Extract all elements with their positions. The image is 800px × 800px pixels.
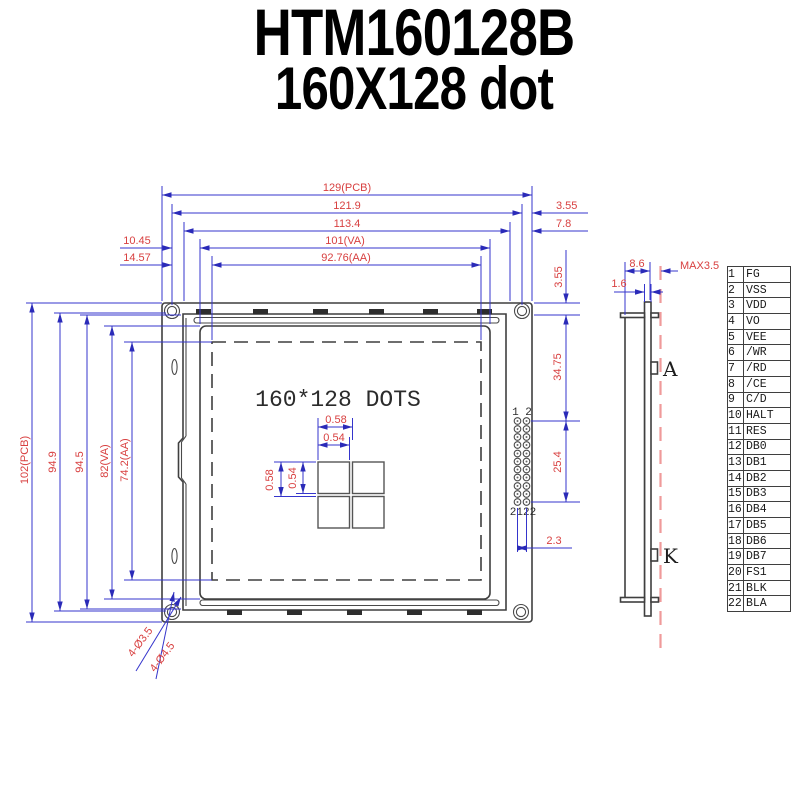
- side-tab-bottom: [651, 598, 659, 603]
- side-glass-block: [625, 317, 645, 599]
- side-anode-pin: [651, 362, 658, 374]
- cathode-label: K: [663, 544, 679, 568]
- pin-last-numbers: 2122: [510, 507, 536, 519]
- side-bezel-flange-bottom: [621, 598, 645, 603]
- dim-frame-edge-offset: 7.8: [556, 218, 571, 230]
- anode-label: A: [662, 357, 678, 381]
- pin-row: 20FS1: [728, 564, 790, 580]
- pin-row: 9C/D: [728, 392, 790, 408]
- pin-row: 3VDD: [728, 297, 790, 313]
- pin-row: 10HALT: [728, 407, 790, 423]
- dim-pin-top-offset: 34.75: [552, 353, 564, 381]
- dim-dot-height: 0.54: [287, 467, 299, 488]
- side-view: A K 8.6 MAX3.5 1.6: [611, 258, 719, 654]
- pin-row: 7/RD: [728, 360, 790, 376]
- dim-pcb-width: 129(PCB): [323, 182, 371, 194]
- dim-aa-height: 74.2(AA): [119, 438, 131, 481]
- dim-top-edge-offset: 3.55: [553, 266, 565, 287]
- pin-row: 14DB2: [728, 470, 790, 486]
- dim-hole-span-height: 94.9: [47, 451, 59, 472]
- pin-row: 13DB1: [728, 454, 790, 470]
- pin-row: 5VEE: [728, 329, 790, 345]
- dim-va-height: 82(VA): [99, 444, 111, 477]
- dim-hole-span-width: 121.9: [333, 200, 361, 212]
- pin-row: 6/WR: [728, 344, 790, 360]
- dim-dot-width: 0.54: [323, 432, 344, 444]
- pin-assignment-table: 1FG 2VSS 3VDD 4VO 5VEE 6/WR 7/RD 8/CE 9C…: [727, 266, 791, 612]
- pin-row: 21BLK: [728, 580, 790, 596]
- side-bezel-flange-top: [621, 313, 645, 318]
- dim-aa-width: 92.76(AA): [321, 252, 371, 264]
- dim-hole-dia-inner: 4-Ø3.5: [126, 625, 156, 659]
- dim-frame-width: 113.4: [334, 218, 361, 230]
- dim-aa-left-offset: 14.57: [123, 252, 151, 264]
- pin-row: 18DB6: [728, 533, 790, 549]
- pin-row: 12DB0: [728, 439, 790, 455]
- dots-resolution-label: 160*128 DOTS: [255, 387, 421, 413]
- front-view: 1 2 2122 160*128 DOTS: [162, 303, 536, 622]
- pin-row: 4VO: [728, 313, 790, 329]
- dim-frame-height: 94.5: [74, 451, 86, 472]
- pin-row: 15DB3: [728, 486, 790, 502]
- side-pcb-bar: [645, 302, 652, 616]
- dim-va-width: 101(VA): [325, 235, 365, 247]
- mechanical-drawing: 1 2 2122 160*128 DOTS: [0, 0, 800, 800]
- dim-pin-span: 25.4: [552, 451, 564, 472]
- pin-row: 22BLA: [728, 595, 790, 611]
- dim-max-component: MAX3.5: [680, 260, 719, 272]
- dim-pcb-thickness: 1.6: [611, 278, 626, 290]
- datasheet-page: HTM160128B 160X128 dot: [0, 0, 800, 800]
- side-cathode-pin: [651, 549, 658, 561]
- dim-dot-pitch-y: 0.58: [264, 469, 276, 490]
- pin-row: 19DB7: [728, 548, 790, 564]
- pin-row: 17DB5: [728, 517, 790, 533]
- pin-row: 16DB4: [728, 501, 790, 517]
- dim-pcb-height: 102(PCB): [19, 436, 31, 484]
- dim-pin-col-pitch: 2.3: [546, 535, 561, 547]
- pin-row: 2VSS: [728, 282, 790, 298]
- pin-first-numbers: 1 2: [512, 407, 532, 419]
- dim-dot-pitch-x: 0.58: [325, 414, 346, 426]
- side-tab-top: [651, 313, 659, 318]
- dim-va-left-offset: 10.45: [123, 235, 151, 247]
- pin-row: 1FG: [728, 267, 790, 282]
- dim-total-thickness: 8.6: [629, 258, 644, 270]
- pin-row: 11RES: [728, 423, 790, 439]
- dim-hole-edge-offset: 3.55: [556, 200, 577, 212]
- pin-row: 8/CE: [728, 376, 790, 392]
